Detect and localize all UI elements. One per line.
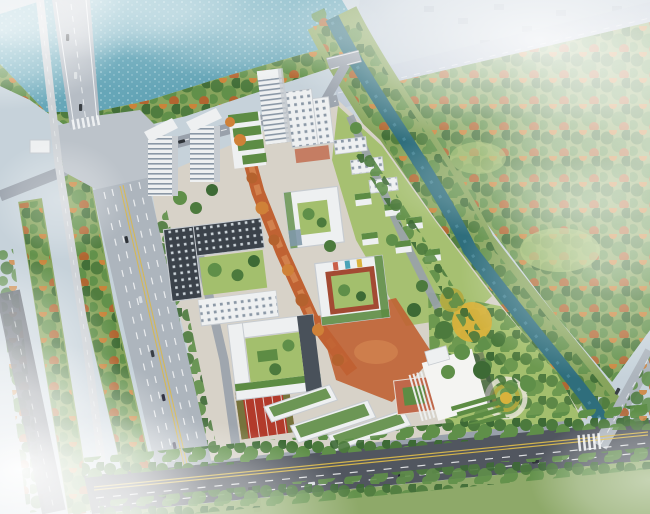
- facade-accent: [333, 262, 339, 271]
- ring-blue-accent: [288, 229, 302, 246]
- orange-tree: [296, 294, 309, 307]
- tree: [190, 202, 202, 214]
- tree: [416, 280, 428, 292]
- orange-tree: [312, 324, 324, 336]
- ring-courtyard: [297, 200, 331, 235]
- aerial-rendering: Aerial masterplan rendering: [0, 0, 650, 514]
- pavilion: [361, 232, 378, 246]
- tower-a: [144, 118, 178, 196]
- pavilion: [355, 192, 372, 206]
- facade-accent: [356, 259, 362, 268]
- red-courtyard-building: [315, 255, 390, 325]
- orange-tree: [225, 117, 235, 127]
- rendering-canvas: Aerial masterplan rendering: [0, 0, 650, 514]
- tower-a-shade: [172, 136, 178, 196]
- tower-a-facade: [148, 136, 176, 196]
- car: [79, 104, 82, 111]
- north-courtyard-building: [284, 186, 344, 248]
- orange-tree: [234, 134, 246, 146]
- tree: [386, 234, 398, 246]
- tree: [473, 361, 491, 379]
- tree: [441, 365, 455, 379]
- tree: [324, 240, 336, 252]
- plaza-patch: [354, 340, 398, 364]
- orange-tree: [332, 354, 344, 366]
- waffle-facade-building: [163, 218, 269, 301]
- orange-tree: [247, 173, 258, 184]
- tree: [206, 184, 218, 196]
- tree: [435, 321, 453, 339]
- orange-tree: [282, 264, 294, 276]
- tower-b-shade: [214, 126, 220, 182]
- central-courtyard-building: [227, 314, 322, 400]
- facade-accent: [345, 260, 351, 269]
- orange-tree: [256, 202, 269, 215]
- orange-tree: [269, 235, 280, 246]
- tree: [520, 376, 536, 392]
- tree: [454, 344, 470, 360]
- tower-b-facade: [190, 126, 218, 182]
- tree: [407, 303, 421, 317]
